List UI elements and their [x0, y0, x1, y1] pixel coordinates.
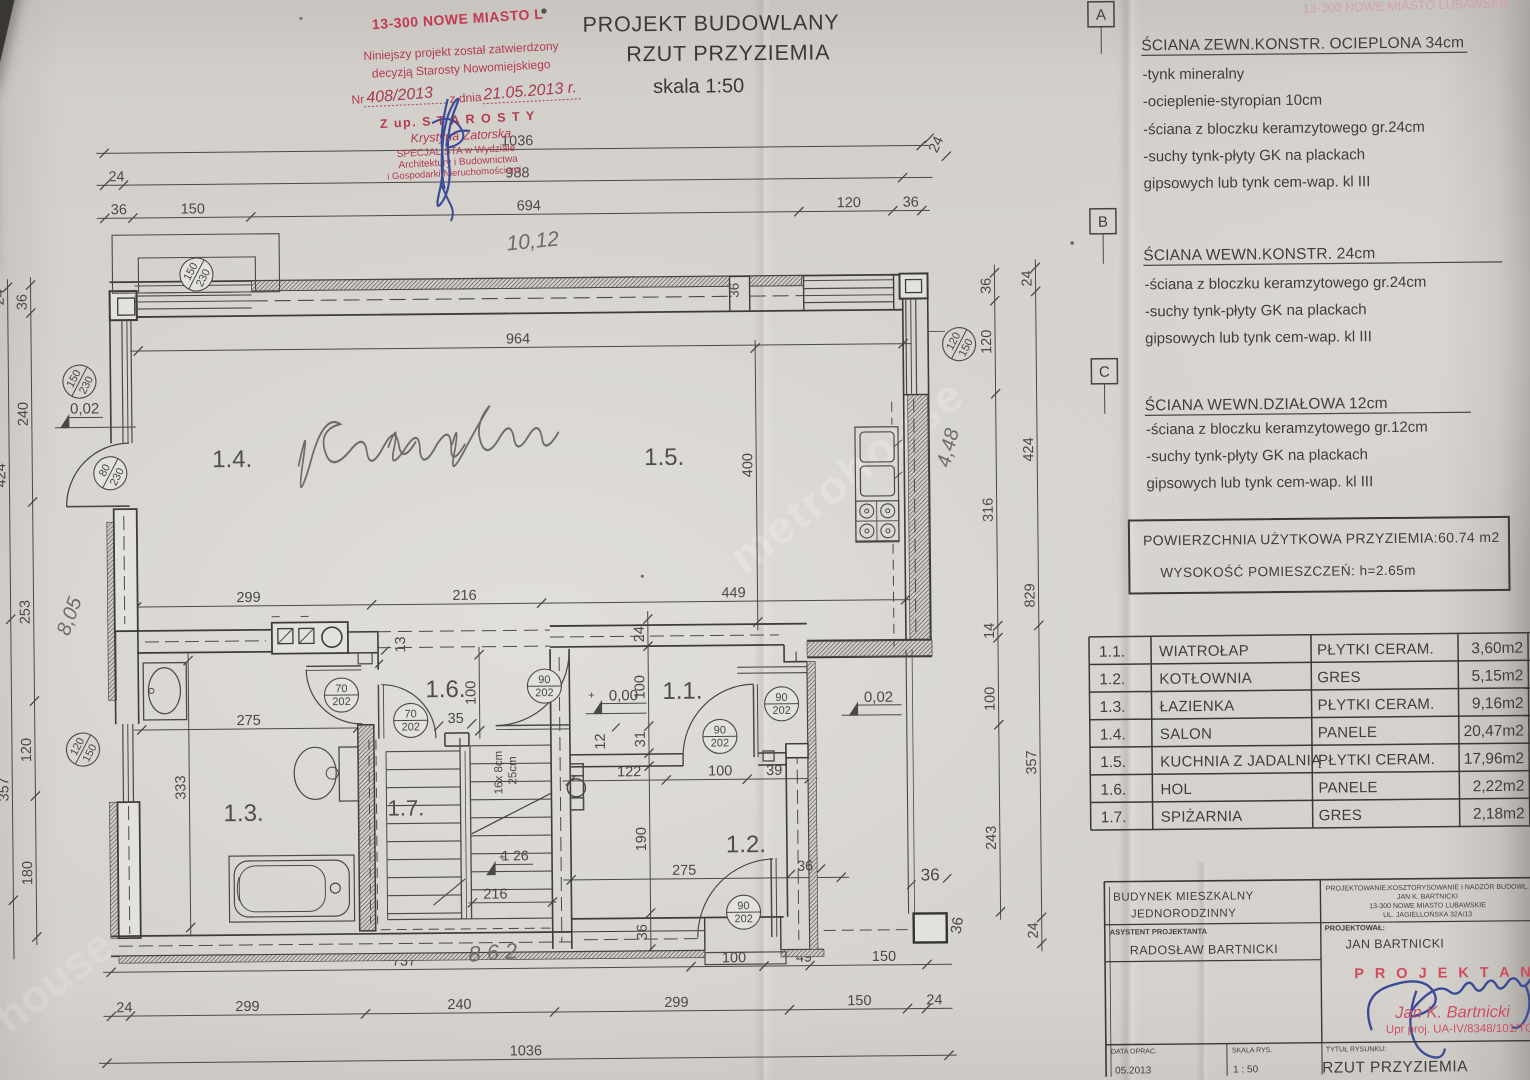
svg-text:gipsowych lub tynk cem-wap. kl: gipsowych lub tynk cem-wap. kl III	[1146, 473, 1373, 492]
svg-text:299: 299	[664, 995, 688, 1011]
svg-text:24: 24	[926, 992, 942, 1008]
svg-text:202: 202	[772, 705, 790, 717]
svg-text:SALON: SALON	[1160, 726, 1213, 744]
svg-text:1.1.: 1.1.	[662, 678, 702, 705]
svg-text:GRES: GRES	[1317, 669, 1360, 686]
svg-text:house: house	[0, 919, 123, 1043]
svg-text:Jan K. Bartnicki: Jan K. Bartnicki	[1394, 1003, 1511, 1022]
svg-text:+: +	[588, 690, 595, 702]
svg-text:13-300 NOWE MIASTO LUBAWSKIE: 13-300 NOWE MIASTO LUBAWSKIE	[1369, 902, 1486, 910]
svg-text:RADOSŁAW BARTNICKI: RADOSŁAW BARTNICKI	[1130, 942, 1278, 957]
svg-text:243: 243	[984, 826, 1000, 850]
svg-text:694: 694	[517, 198, 541, 214]
svg-text:1.4.: 1.4.	[1100, 726, 1126, 743]
svg-text:JEDNORODZINNY: JEDNORODZINNY	[1131, 907, 1237, 920]
svg-text:424: 424	[1021, 437, 1037, 461]
svg-text:Upr proj. UA-IV/8348/101/TO/8: Upr proj. UA-IV/8348/101/TO/8	[1386, 1023, 1530, 1037]
svg-text:ASYSTENT PROJEKTANTA: ASYSTENT PROJEKTANTA	[1110, 927, 1208, 937]
svg-text:RZUT PRZYZIEMIA: RZUT PRZYZIEMIA	[626, 40, 830, 66]
svg-text:36: 36	[15, 294, 31, 310]
svg-text:gipsowych lub tynk cem-wap. kl: gipsowych lub tynk cem-wap. kl III	[1145, 328, 1372, 347]
svg-text:36: 36	[635, 924, 651, 940]
svg-text:ŚCIANA WEWN.DZIAŁOWA 12cm: ŚCIANA WEWN.DZIAŁOWA 12cm	[1145, 394, 1388, 414]
svg-text:190: 190	[634, 827, 650, 851]
svg-text:9,16m2: 9,16m2	[1472, 695, 1524, 712]
svg-text:ŁAZIENKA: ŁAZIENKA	[1160, 698, 1235, 716]
svg-text:24: 24	[1026, 922, 1042, 938]
svg-text:17,96m2: 17,96m2	[1464, 750, 1524, 768]
svg-text:90: 90	[737, 900, 749, 912]
svg-text:1.1.: 1.1.	[1099, 644, 1125, 661]
svg-text:1 : 50: 1 : 50	[1233, 1064, 1259, 1075]
svg-text:1 26: 1 26	[501, 847, 529, 863]
svg-text:1.5.: 1.5.	[1100, 754, 1126, 771]
svg-text:400: 400	[740, 453, 756, 477]
svg-text:PANELE: PANELE	[1318, 779, 1377, 797]
svg-text:gipsowych lub tynk cem-wap. kl: gipsowych lub tynk cem-wap. kl III	[1144, 173, 1371, 192]
svg-text:C: C	[1099, 364, 1110, 381]
svg-text:1.2.: 1.2.	[726, 831, 766, 858]
svg-text:829: 829	[1022, 583, 1038, 607]
svg-text:1036: 1036	[510, 1043, 542, 1059]
svg-text:150: 150	[872, 949, 896, 965]
svg-text:100: 100	[463, 681, 479, 705]
svg-text:PŁYTKI CERAM.: PŁYTKI CERAM.	[1318, 751, 1435, 769]
svg-text:POWIERZCHNIA UŻYTKOWA PRZYZI: POWIERZCHNIA UŻYTKOWA PRZYZIEMIA:60.74 m…	[1143, 528, 1500, 548]
svg-text:964: 964	[506, 331, 530, 347]
svg-text:202: 202	[402, 721, 420, 733]
svg-text:UL. JAGIELLOŃSKA 32A/13: UL. JAGIELLOŃSKA 32A/13	[1383, 909, 1472, 919]
svg-text:240: 240	[16, 402, 32, 426]
svg-text:PROJEKT BUDOWLANY: PROJEKT BUDOWLANY	[582, 10, 839, 36]
svg-text:36: 36	[797, 859, 813, 875]
svg-text:3,60m2: 3,60m2	[1471, 640, 1523, 657]
svg-text:SKALA RYS.: SKALA RYS.	[1232, 1047, 1272, 1054]
svg-text:100: 100	[708, 763, 732, 779]
svg-text:1.7.: 1.7.	[1101, 809, 1127, 826]
svg-text:P R O J E K T A N T: P R O J E K T A N T	[1354, 964, 1530, 982]
svg-text:skala 1:50: skala 1:50	[653, 75, 744, 98]
svg-text:35: 35	[448, 711, 464, 727]
svg-text:Nr: Nr	[351, 92, 365, 107]
svg-text:-tynk mineralny: -tynk mineralny	[1142, 65, 1244, 83]
svg-text:253: 253	[18, 600, 34, 624]
svg-text:13: 13	[393, 636, 409, 652]
svg-text:KUCHNIA Z JADALNIĄ: KUCHNIA Z JADALNIĄ	[1160, 752, 1322, 771]
svg-text:0,02: 0,02	[864, 689, 893, 706]
svg-text:24: 24	[116, 1000, 132, 1016]
svg-text:1.3.: 1.3.	[223, 800, 263, 827]
svg-text:357: 357	[1024, 750, 1040, 774]
svg-text:36: 36	[948, 916, 968, 935]
svg-text:RZUT PRZYZIEMIA: RZUT PRZYZIEMIA	[1322, 1058, 1468, 1076]
svg-text:TYTUŁ RYSUNKU:: TYTUŁ RYSUNKU:	[1326, 1046, 1386, 1054]
svg-text:70: 70	[404, 708, 416, 720]
svg-text:408/2013: 408/2013	[366, 84, 434, 106]
svg-text:31: 31	[633, 731, 649, 747]
svg-text:DATA OPRAC.: DATA OPRAC.	[1111, 1048, 1157, 1055]
svg-text:+: +	[499, 852, 506, 864]
svg-text:12: 12	[593, 733, 609, 749]
svg-text:-suchy tynk-płyty GK na placka: -suchy tynk-płyty GK na plackach	[1146, 446, 1368, 465]
svg-text:2,22m2: 2,22m2	[1473, 778, 1525, 795]
svg-text:25cm: 25cm	[507, 756, 519, 784]
svg-text:0,00: 0,00	[609, 687, 638, 704]
svg-text:PROJEKTOWANIE,KOSZTORYSOWANIE: PROJEKTOWANIE,KOSZTORYSOWANIE I NADZÓR B…	[1326, 882, 1529, 893]
svg-text:100: 100	[982, 687, 998, 711]
svg-text:24: 24	[0, 289, 8, 305]
svg-text:WIATROŁAP: WIATROŁAP	[1159, 642, 1249, 660]
svg-text:-ocieplenie-styropian 10cm: -ocieplenie-styropian 10cm	[1143, 92, 1322, 111]
svg-text:-ściana z bloczku keramzytoweg: -ściana z bloczku keramzytowego gr.24cm	[1144, 274, 1426, 294]
svg-text:120: 120	[979, 330, 995, 354]
svg-text:14: 14	[982, 623, 998, 639]
svg-text:0,02: 0,02	[70, 400, 99, 417]
svg-text:299: 299	[235, 999, 259, 1015]
svg-text:1.7.: 1.7.	[387, 795, 424, 820]
svg-text:449: 449	[721, 585, 745, 601]
svg-text:8,05: 8,05	[53, 593, 87, 638]
svg-text:24: 24	[632, 626, 648, 642]
svg-text:KOTŁOWNIA: KOTŁOWNIA	[1159, 670, 1252, 688]
svg-text:36: 36	[111, 202, 127, 218]
svg-text:70: 70	[335, 683, 347, 695]
svg-text:8 6 2: 8 6 2	[467, 938, 518, 967]
svg-text:JAN K. BARTNICKI: JAN K. BARTNICKI	[1397, 893, 1458, 901]
svg-text:-suchy tynk-płyty GK na placka: -suchy tynk-płyty GK na plackach	[1143, 146, 1365, 165]
svg-text:24: 24	[926, 134, 947, 155]
svg-text:150: 150	[181, 201, 205, 217]
svg-text:180: 180	[20, 861, 36, 885]
svg-text:ŚCIANA ZEWN.KONSTR. OCIEPLONA: ŚCIANA ZEWN.KONSTR. OCIEPLONA 34cm	[1141, 33, 1464, 54]
svg-text:-ściana z bloczku keramzytoweg: -ściana z bloczku keramzytowego gr.12cm	[1146, 419, 1428, 439]
svg-text:90: 90	[714, 724, 726, 736]
svg-text:1.4.: 1.4.	[212, 446, 252, 473]
svg-text:24: 24	[108, 169, 124, 185]
svg-text:1.6.: 1.6.	[1100, 782, 1126, 799]
svg-text:36: 36	[727, 283, 742, 298]
svg-text:36: 36	[978, 278, 994, 294]
svg-text:202: 202	[332, 696, 350, 708]
svg-text:202: 202	[734, 913, 752, 925]
svg-text:ŚCIANA WEWN.KONSTR. 24cm: ŚCIANA WEWN.KONSTR. 24cm	[1143, 244, 1375, 264]
svg-text:20,47m2: 20,47m2	[1463, 723, 1523, 741]
svg-text:Z up. S T A R O S T Y: Z up. S T A R O S T Y	[379, 109, 536, 131]
svg-text:B: B	[1098, 214, 1108, 231]
svg-text:PŁYTKI CERAM.: PŁYTKI CERAM.	[1318, 696, 1435, 714]
svg-text:275: 275	[672, 863, 696, 879]
svg-text:202: 202	[711, 737, 729, 749]
svg-text:PANELE: PANELE	[1318, 724, 1377, 742]
svg-text:36: 36	[921, 865, 940, 884]
svg-text:120: 120	[837, 195, 861, 211]
svg-text:299: 299	[236, 590, 260, 606]
svg-text:JAN BARTNICKI: JAN BARTNICKI	[1345, 936, 1444, 951]
svg-text:10,12: 10,12	[505, 227, 560, 255]
svg-text:316: 316	[981, 498, 997, 522]
svg-text:13-300 NOWE MIASTO L: 13-300 NOWE MIASTO L	[372, 6, 544, 33]
svg-text:BUDYNEK MIESZKALNY: BUDYNEK MIESZKALNY	[1113, 890, 1254, 903]
svg-text:GRES: GRES	[1319, 807, 1362, 824]
svg-text:150: 150	[847, 993, 871, 1009]
svg-text:424: 424	[0, 463, 9, 487]
svg-text:PROJEKTOWAŁ:: PROJEKTOWAŁ:	[1325, 923, 1385, 933]
svg-text:90: 90	[775, 692, 787, 704]
svg-text:1.6.: 1.6.	[425, 676, 465, 703]
svg-text:-suchy tynk-płyty GK na placka: -suchy tynk-płyty GK na plackach	[1145, 301, 1367, 320]
svg-text:PŁYTKI CERAM.: PŁYTKI CERAM.	[1317, 641, 1434, 659]
svg-text:24: 24	[1019, 270, 1035, 286]
svg-text:SPIŻARNIA: SPIŻARNIA	[1161, 807, 1243, 826]
svg-text:1.5.: 1.5.	[644, 444, 684, 471]
svg-text:WYSOKOŚĆ POMIESZCZEŃ: h=2.65m: WYSOKOŚĆ POMIESZCZEŃ: h=2.65m	[1160, 563, 1416, 580]
svg-text:202: 202	[535, 687, 553, 699]
svg-text:216: 216	[483, 886, 507, 902]
svg-text:36: 36	[903, 195, 919, 211]
svg-text:333: 333	[173, 775, 189, 799]
svg-text:HOL: HOL	[1160, 781, 1192, 798]
svg-text:1.3.: 1.3.	[1100, 699, 1126, 716]
svg-text:13-300 NOWE MIASTO LUBAWSKIE: 13-300 NOWE MIASTO LUBAWSKIE	[1302, 0, 1511, 16]
svg-text:16x 8cm: 16x 8cm	[493, 751, 505, 795]
svg-text:2,18m2: 2,18m2	[1473, 805, 1525, 822]
svg-text:A: A	[1096, 7, 1106, 24]
svg-text:357: 357	[0, 777, 12, 801]
svg-text:05.2013: 05.2013	[1115, 1065, 1152, 1076]
svg-text:1.2.: 1.2.	[1099, 671, 1125, 688]
svg-text:216: 216	[452, 588, 476, 604]
svg-text:90: 90	[538, 674, 550, 686]
svg-text:120: 120	[19, 738, 35, 762]
svg-text:-ściana z bloczku keramzytoweg: -ściana z bloczku keramzytowego gr.24cm	[1143, 119, 1425, 139]
svg-text:275: 275	[237, 713, 261, 729]
svg-text:5,15m2: 5,15m2	[1472, 667, 1524, 684]
svg-text:240: 240	[447, 997, 471, 1013]
